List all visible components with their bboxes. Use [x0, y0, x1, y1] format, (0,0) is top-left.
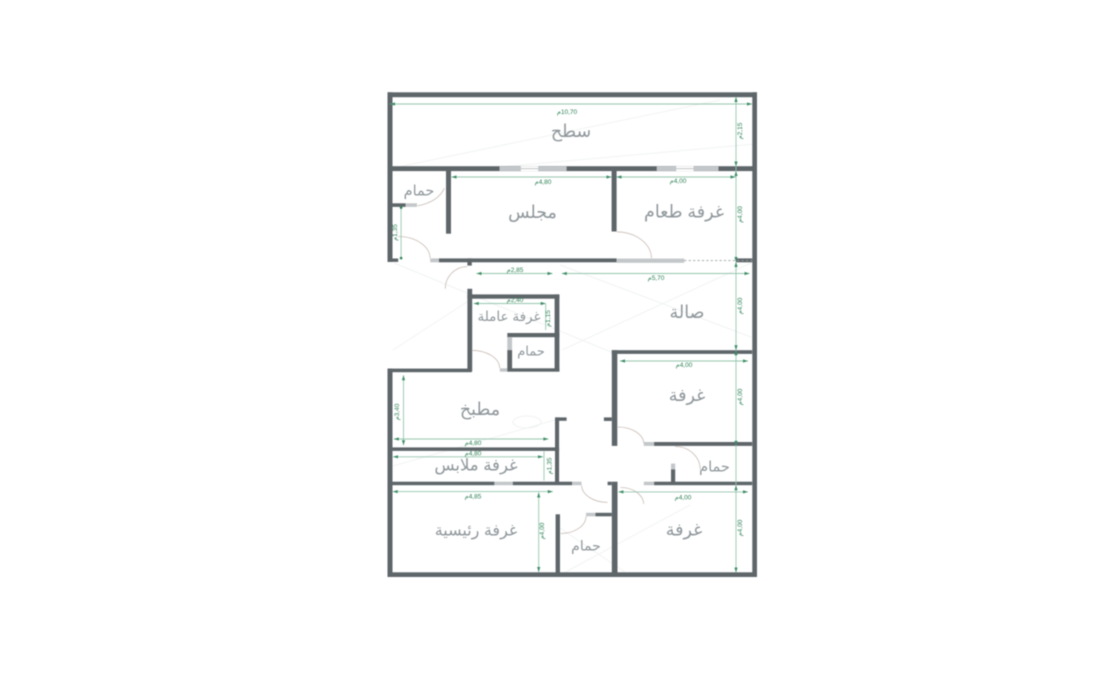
svg-text:م‎2,40: م‎2,40 — [507, 297, 524, 304]
svg-text:حمام: حمام — [404, 184, 435, 200]
svg-text:غرفة رئيسية: غرفة رئيسية — [435, 523, 518, 541]
svg-text:م‎2,85: م‎2,85 — [507, 267, 524, 274]
svg-text:م‎4,00: م‎4,00 — [737, 388, 744, 405]
svg-text:م‎10,70: م‎10,70 — [557, 109, 578, 116]
svg-text:م‎1,35: م‎1,35 — [392, 224, 399, 241]
svg-text:غرفة عاملة: غرفة عاملة — [477, 309, 540, 325]
svg-text:حمام: حمام — [571, 538, 601, 554]
svg-text:م‎4,00: م‎4,00 — [670, 178, 687, 185]
svg-text:م‎4,80: م‎4,80 — [465, 440, 482, 447]
svg-text:غرفة: غرفة — [669, 385, 706, 405]
svg-text:م‎1,35: م‎1,35 — [547, 457, 554, 474]
svg-text:م‎5,70: م‎5,70 — [648, 275, 665, 282]
svg-text:غرفة ملابس: غرفة ملابس — [434, 457, 518, 476]
svg-text:غرفة طعام: غرفة طعام — [644, 202, 724, 222]
svg-text:م‎4,00: م‎4,00 — [676, 362, 693, 369]
svg-text:مطبخ: مطبخ — [460, 399, 500, 420]
svg-text:م‎4,80: م‎4,80 — [535, 179, 552, 186]
svg-text:حمام: حمام — [517, 344, 545, 359]
svg-text:م‎4,00: م‎4,00 — [737, 519, 744, 536]
svg-text:م‎3,40: م‎3,40 — [394, 403, 401, 420]
svg-text:م‎4,00: م‎4,00 — [675, 494, 692, 501]
svg-text:م‎4,85: م‎4,85 — [465, 493, 482, 500]
svg-text:غرفة: غرفة — [666, 520, 703, 540]
svg-text:م‎1,15: م‎1,15 — [545, 310, 552, 327]
svg-text:م‎4,00: م‎4,00 — [737, 206, 744, 223]
svg-text:سطح: سطح — [551, 121, 591, 142]
svg-text:م‎4,00: م‎4,00 — [539, 522, 546, 539]
svg-text:حمام: حمام — [699, 460, 730, 476]
svg-text:م‎2,15: م‎2,15 — [737, 122, 744, 139]
svg-text:م‎4,00: م‎4,00 — [737, 297, 744, 314]
svg-text:مجلس: مجلس — [508, 202, 557, 222]
svg-text:صالة: صالة — [670, 302, 705, 322]
